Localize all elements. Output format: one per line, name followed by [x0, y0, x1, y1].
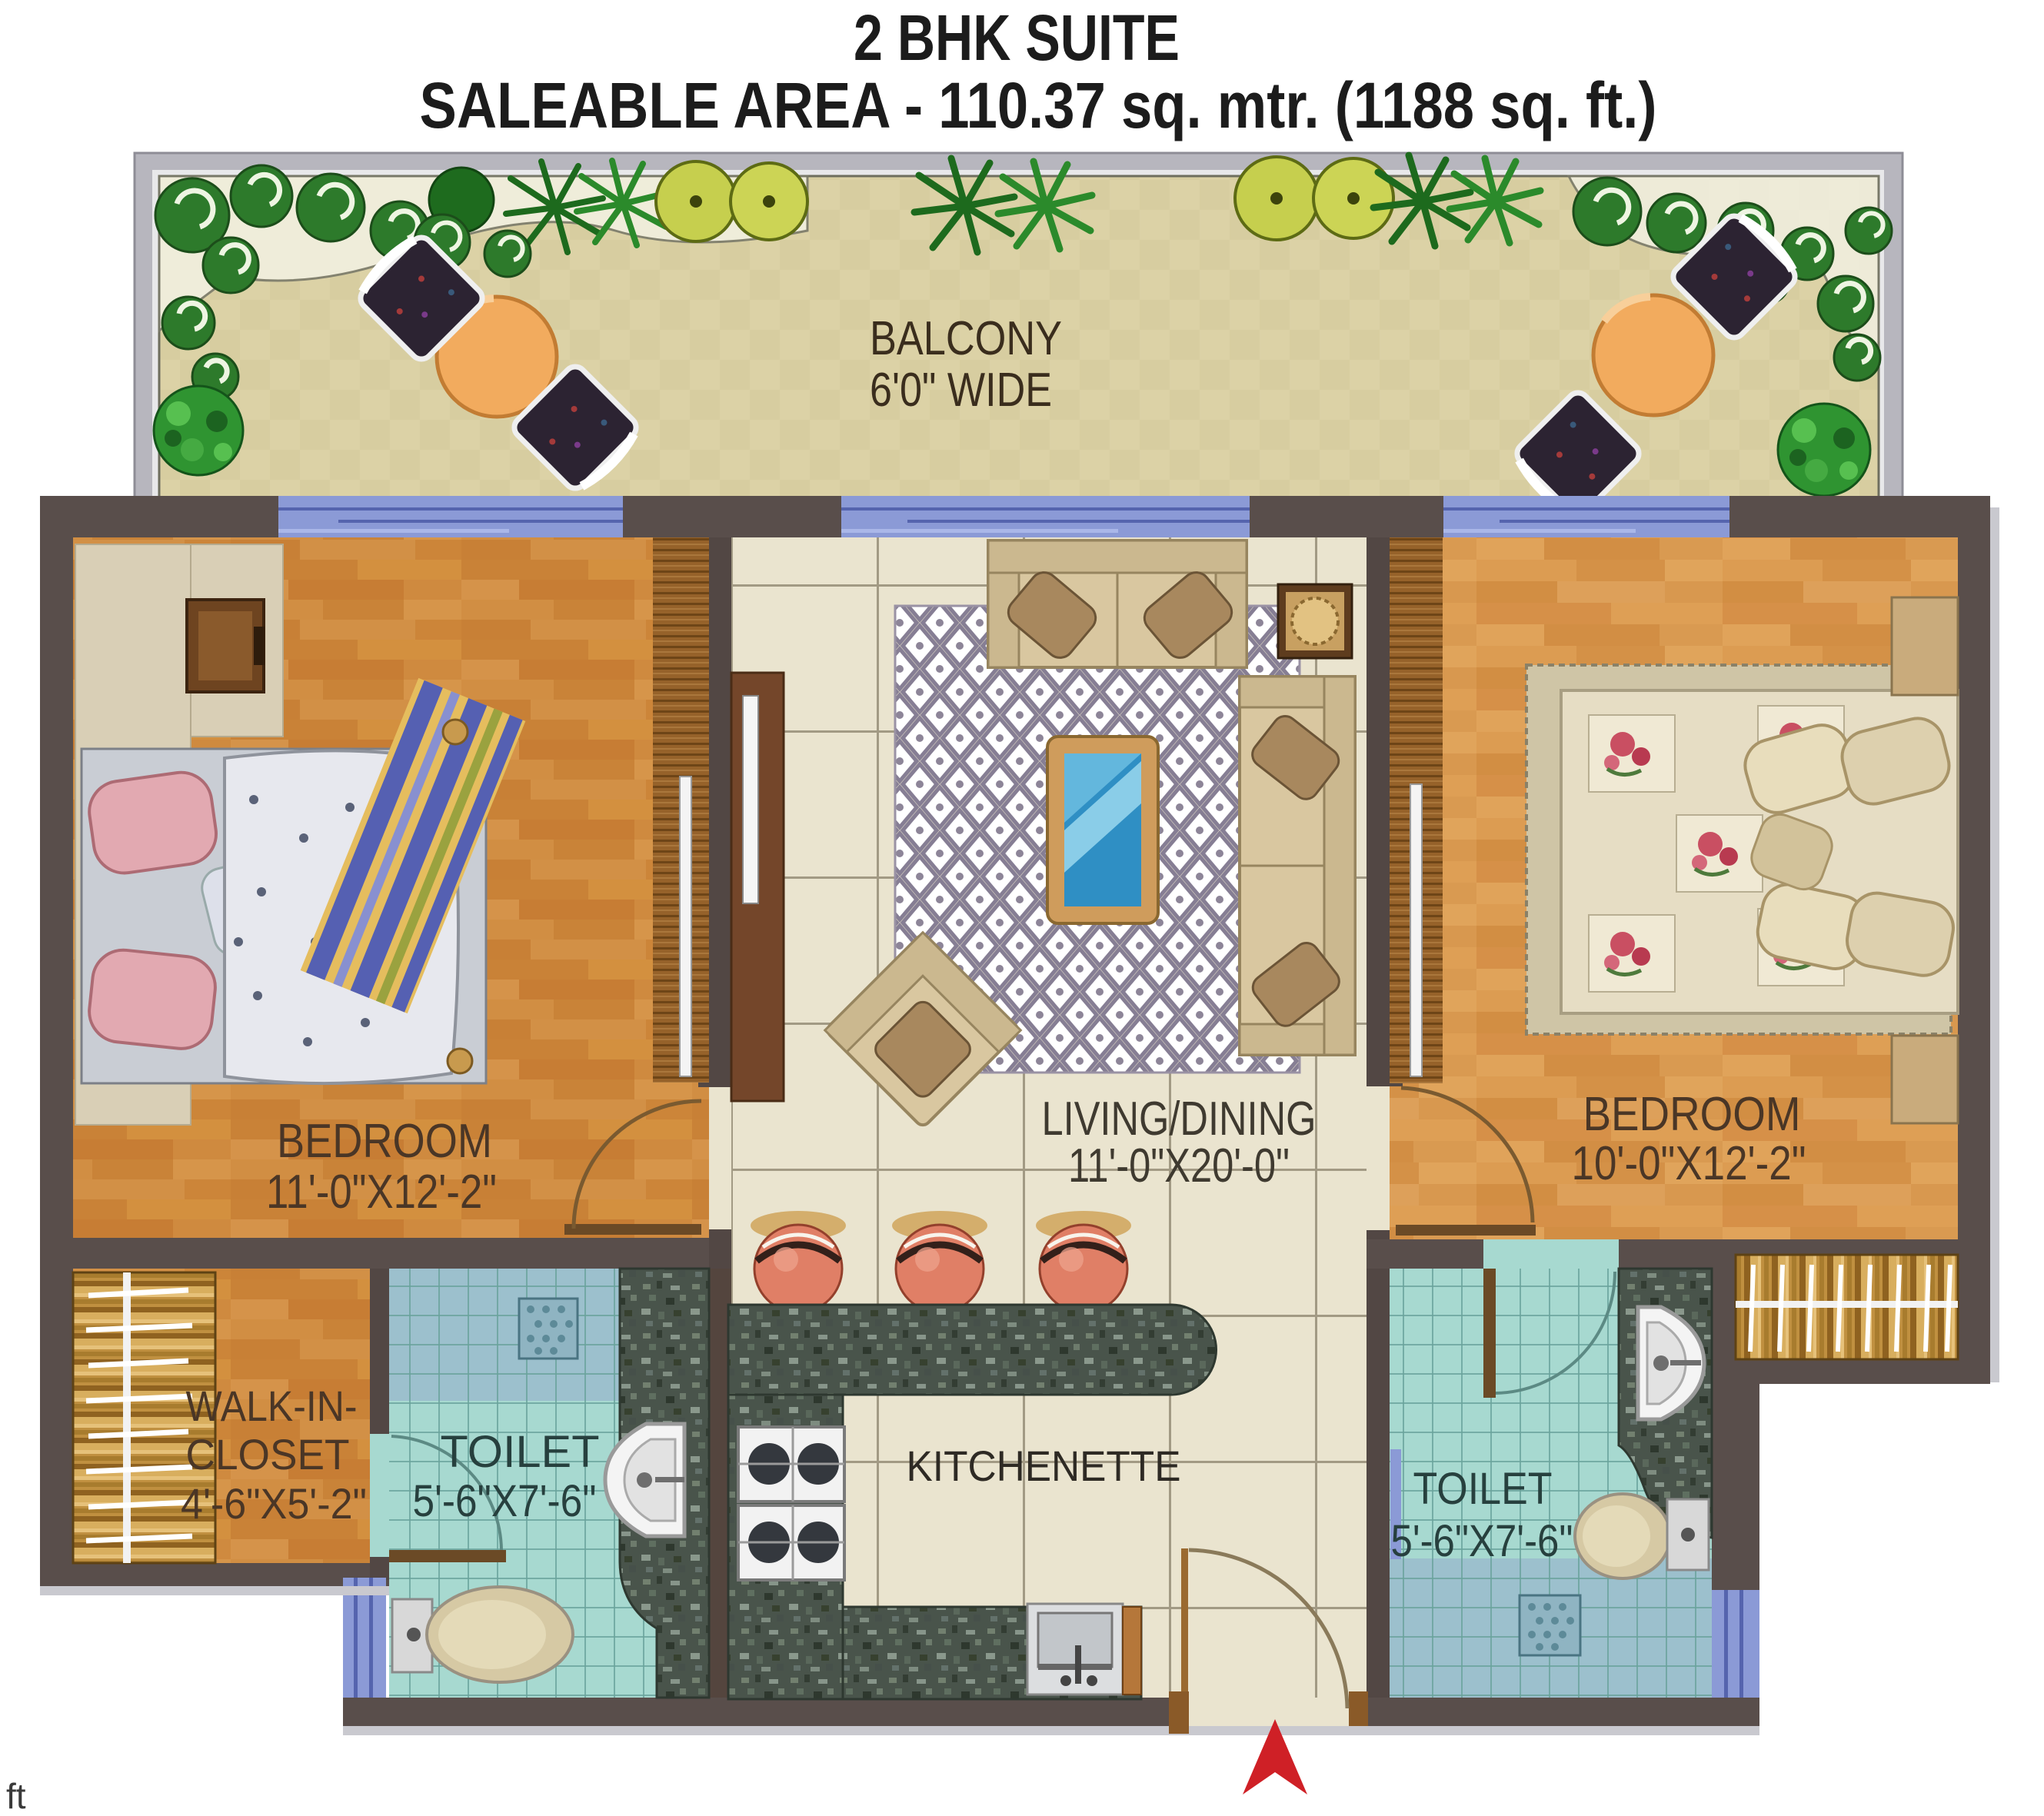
svg-text:6'0" WIDE: 6'0" WIDE — [870, 364, 1052, 417]
svg-text:BEDROOM: BEDROOM — [277, 1115, 492, 1168]
svg-text:BALCONY: BALCONY — [870, 312, 1062, 365]
svg-text:10'-0"X12'-2": 10'-0"X12'-2" — [1572, 1137, 1806, 1190]
svg-text:BEDROOM: BEDROOM — [1583, 1088, 1801, 1141]
svg-text:SALEABLE AREA - 110.37 sq. mtr: SALEABLE AREA - 110.37 sq. mtr. (1188 sq… — [420, 69, 1657, 141]
svg-text:5'-6"X7'-6": 5'-6"X7'-6" — [413, 1476, 597, 1526]
svg-text:11'-0"X20'-0": 11'-0"X20'-0" — [1068, 1139, 1290, 1192]
svg-text:4'-6"X5'-2": 4'-6"X5'-2" — [181, 1479, 367, 1528]
svg-text:WALK-IN-: WALK-IN- — [186, 1382, 358, 1430]
svg-text:TOILET: TOILET — [441, 1427, 600, 1477]
svg-text:TOILET: TOILET — [1413, 1464, 1553, 1514]
svg-text:ft: ft — [6, 1776, 26, 1816]
svg-text:CLOSET: CLOSET — [186, 1430, 350, 1478]
svg-text:2 BHK SUITE: 2 BHK SUITE — [854, 2, 1180, 74]
svg-text:5'-6"X7'-6": 5'-6"X7'-6" — [1391, 1516, 1573, 1566]
svg-text:11'-0"X12'-2": 11'-0"X12'-2" — [266, 1166, 497, 1219]
svg-text:LIVING/DINING: LIVING/DINING — [1042, 1093, 1317, 1146]
svg-text:KITCHENETTE: KITCHENETTE — [907, 1442, 1181, 1490]
